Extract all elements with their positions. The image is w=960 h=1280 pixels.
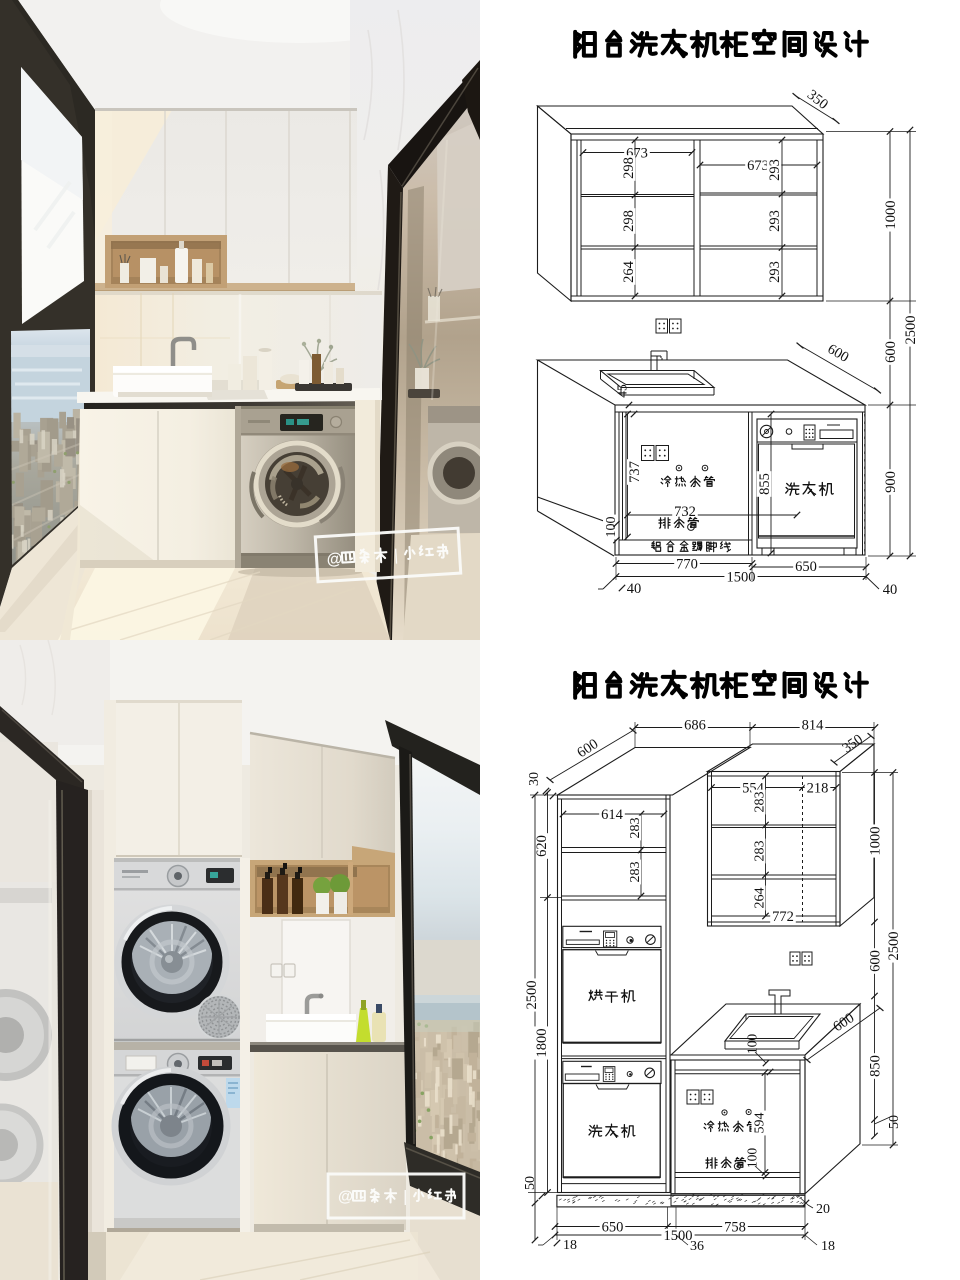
svg-text:40: 40 [883, 582, 898, 598]
svg-text:650: 650 [602, 1219, 624, 1235]
svg-text:2500: 2500 [886, 932, 902, 961]
svg-text:1000: 1000 [883, 201, 899, 230]
svg-text:1500: 1500 [727, 569, 756, 585]
svg-text:283: 283 [752, 841, 767, 862]
svg-text:100: 100 [604, 517, 619, 538]
svg-text:30: 30 [527, 772, 542, 786]
svg-text:600: 600 [883, 341, 899, 363]
svg-text:855: 855 [757, 473, 773, 495]
svg-text:218: 218 [807, 780, 829, 796]
svg-text:298: 298 [621, 157, 637, 179]
svg-text:264: 264 [621, 260, 637, 283]
svg-text:673: 673 [747, 158, 769, 174]
svg-text:18: 18 [563, 1238, 577, 1253]
svg-text:@: @ [338, 1189, 353, 1206]
svg-text:2500: 2500 [903, 316, 919, 345]
svg-text:283: 283 [628, 818, 643, 839]
svg-text:293: 293 [767, 261, 783, 283]
svg-text:45: 45 [615, 384, 630, 398]
svg-text:293: 293 [767, 210, 783, 232]
svg-text:594: 594 [752, 1113, 767, 1134]
svg-text:850: 850 [867, 1055, 883, 1077]
svg-text:|: | [403, 1189, 407, 1206]
svg-text:20: 20 [816, 1202, 830, 1217]
svg-text:18: 18 [821, 1239, 835, 1254]
svg-text:758: 758 [724, 1219, 746, 1235]
svg-text:600: 600 [867, 950, 883, 972]
svg-text:732: 732 [674, 504, 696, 520]
svg-text:298: 298 [621, 210, 637, 232]
svg-text:293: 293 [767, 159, 783, 181]
svg-text:614: 614 [601, 807, 624, 823]
svg-text:283: 283 [752, 792, 767, 813]
svg-text:264: 264 [752, 888, 767, 909]
svg-text:100: 100 [745, 1148, 760, 1169]
svg-text:686: 686 [684, 717, 706, 733]
svg-text:40: 40 [627, 581, 642, 597]
svg-text:814: 814 [802, 717, 825, 733]
svg-text:620: 620 [534, 835, 550, 857]
svg-text:1000: 1000 [867, 827, 883, 856]
svg-text:100: 100 [745, 1034, 760, 1055]
svg-text:2500: 2500 [524, 981, 540, 1010]
svg-text:283: 283 [628, 862, 643, 883]
svg-text:@: @ [326, 551, 343, 569]
svg-text:1800: 1800 [534, 1029, 550, 1058]
svg-text:50: 50 [523, 1176, 538, 1190]
svg-text:1500: 1500 [664, 1228, 693, 1244]
svg-text:772: 772 [772, 909, 794, 925]
svg-text:770: 770 [676, 556, 698, 572]
svg-text:50: 50 [887, 1115, 902, 1129]
svg-text:650: 650 [795, 559, 817, 575]
svg-text:36: 36 [690, 1239, 704, 1254]
svg-text:900: 900 [883, 471, 899, 493]
svg-text:737: 737 [627, 461, 643, 483]
